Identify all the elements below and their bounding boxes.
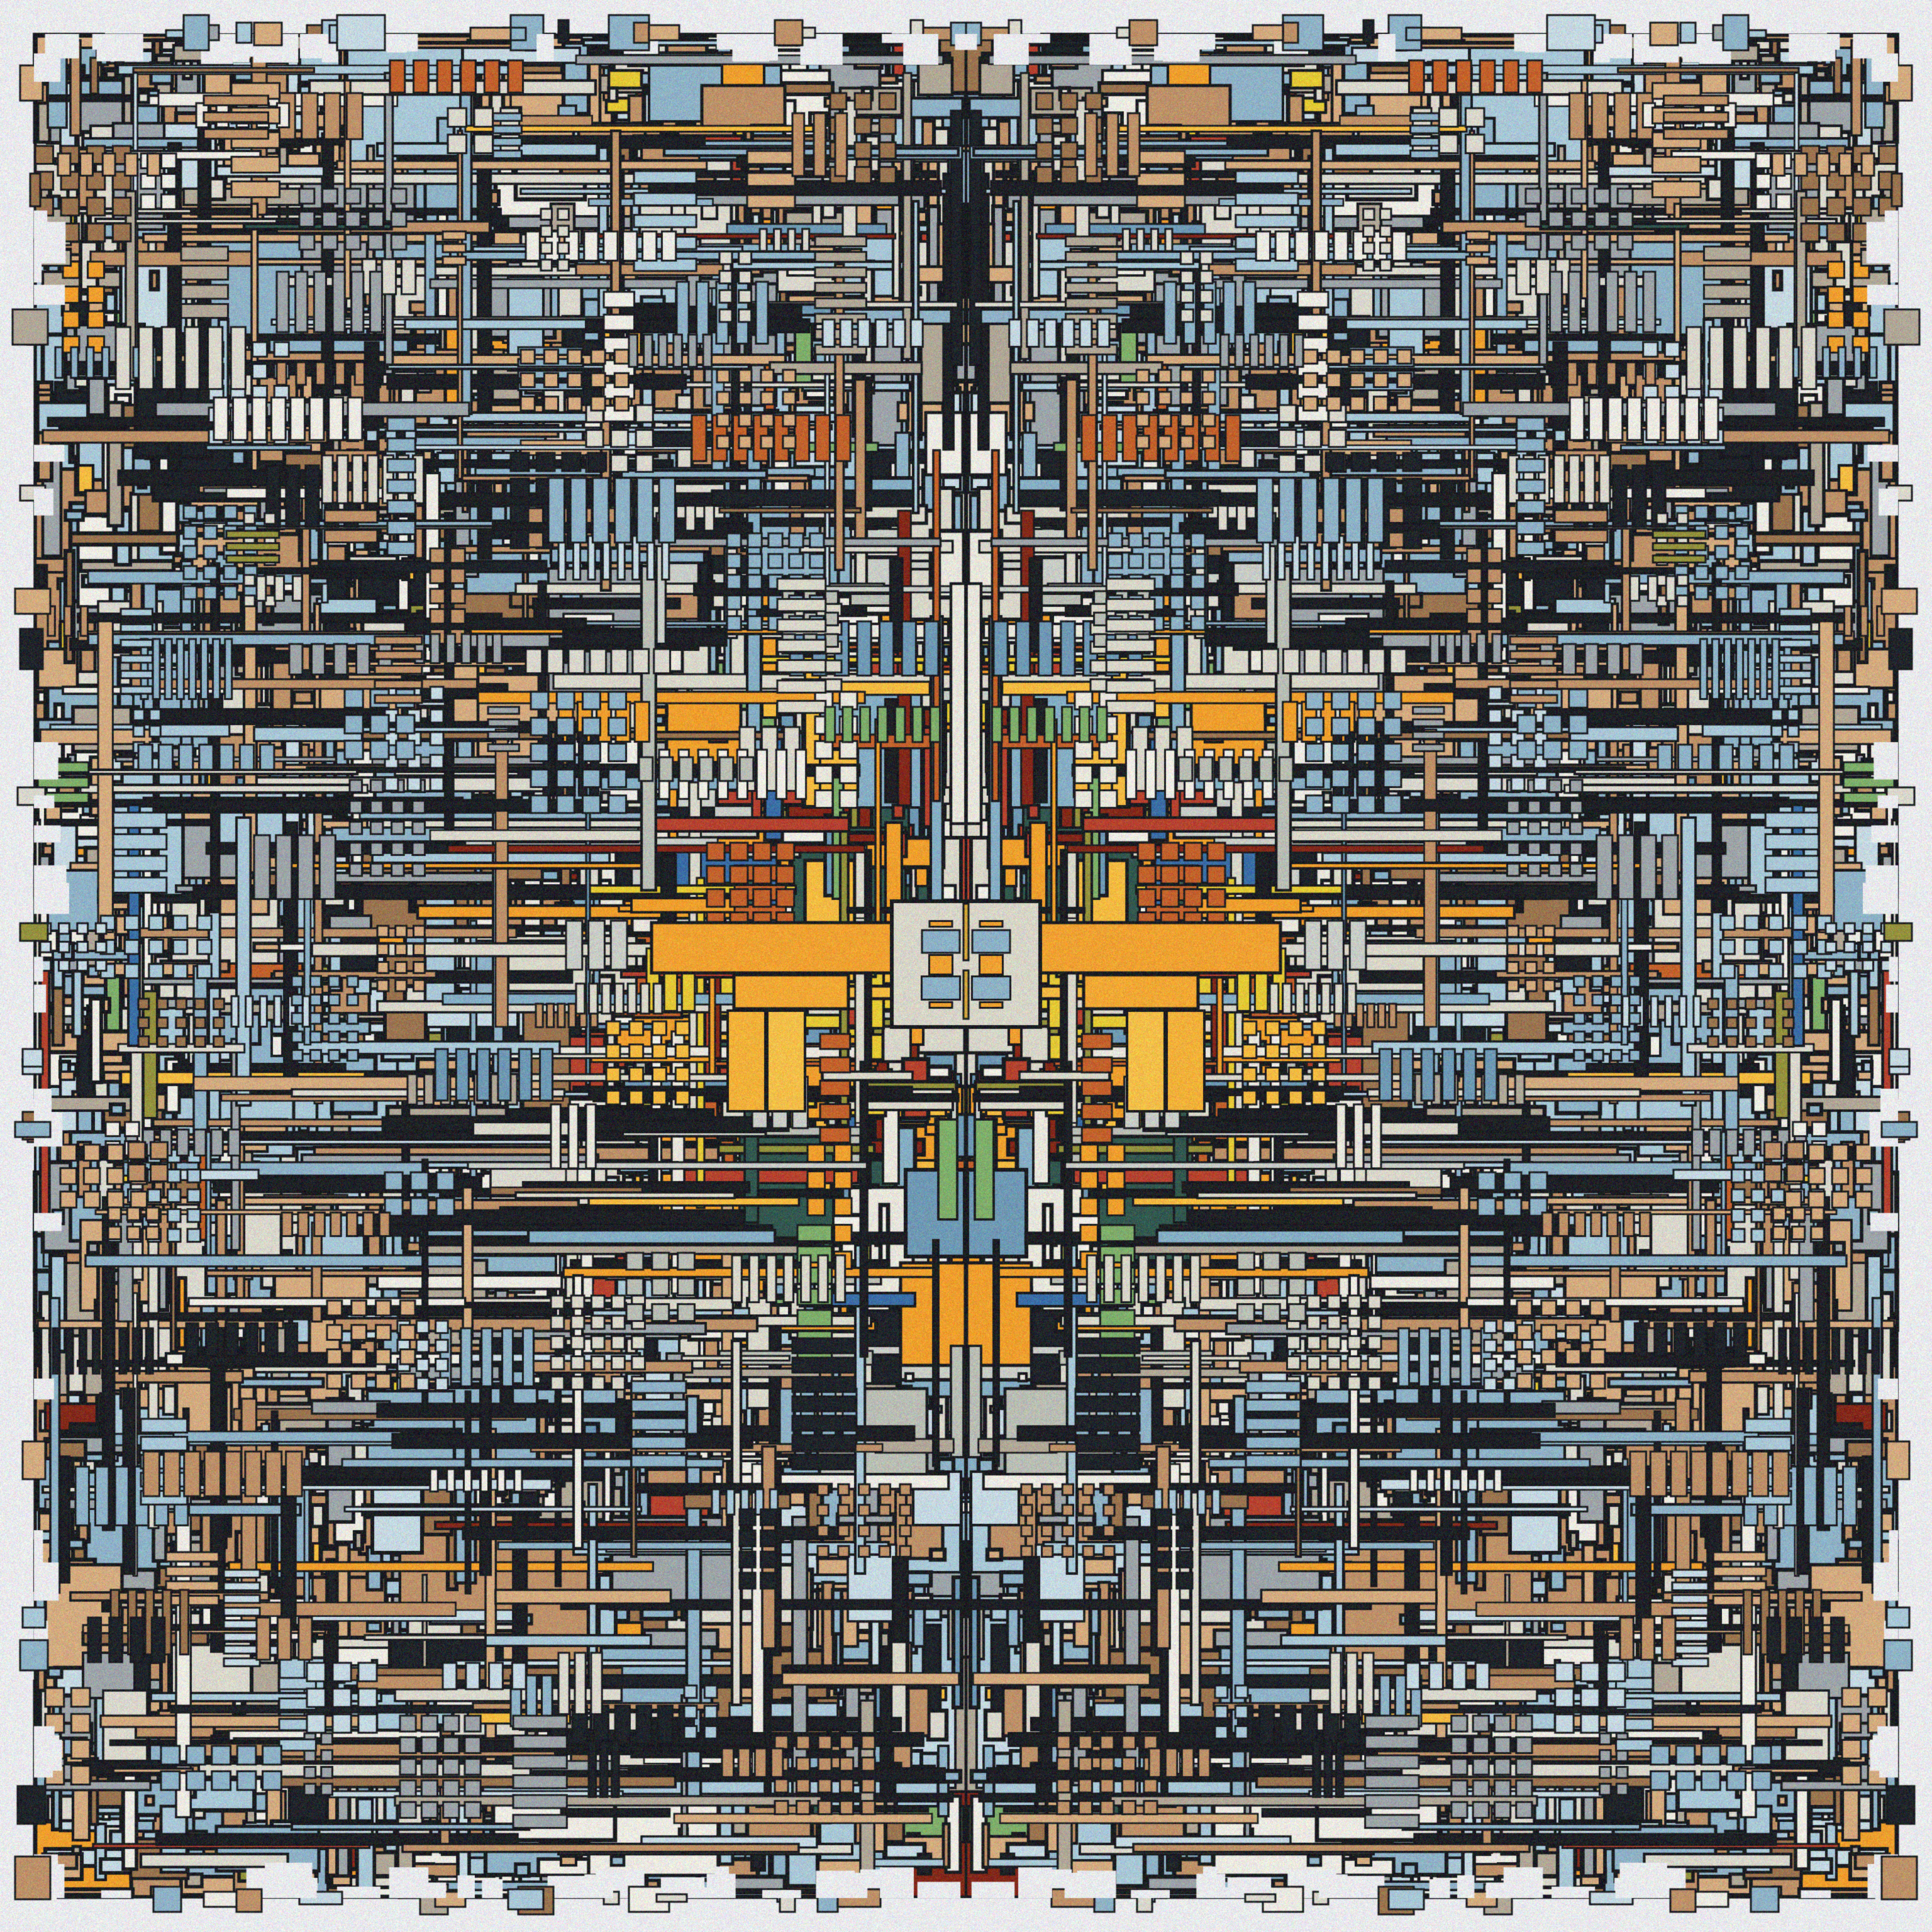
generative-artwork-canvas bbox=[0, 0, 1932, 1932]
artwork-stage bbox=[0, 0, 1932, 1932]
